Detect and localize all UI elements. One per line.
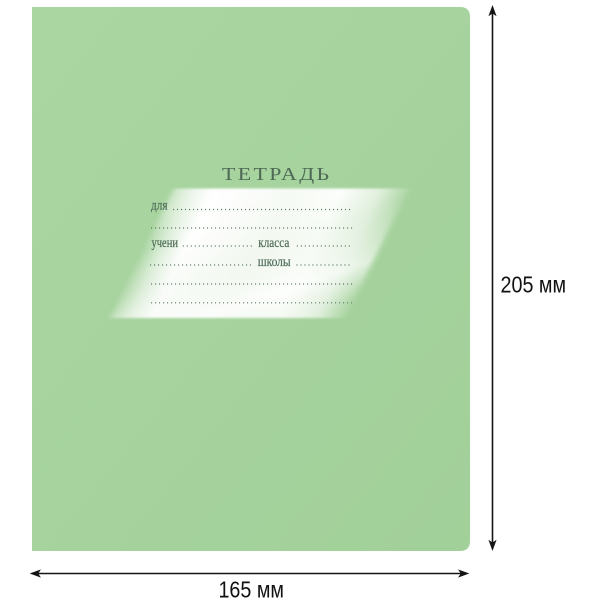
- svg-text:165 мм: 165 мм: [218, 577, 284, 600]
- svg-text:ТЕТРАДЬ: ТЕТРАДЬ: [222, 164, 332, 184]
- svg-text:школы: школы: [258, 255, 291, 270]
- svg-text:класса: класса: [258, 236, 290, 251]
- svg-text:для: для: [151, 199, 168, 214]
- svg-text:205 мм: 205 мм: [501, 272, 567, 298]
- svg-text:учени: учени: [152, 236, 179, 251]
